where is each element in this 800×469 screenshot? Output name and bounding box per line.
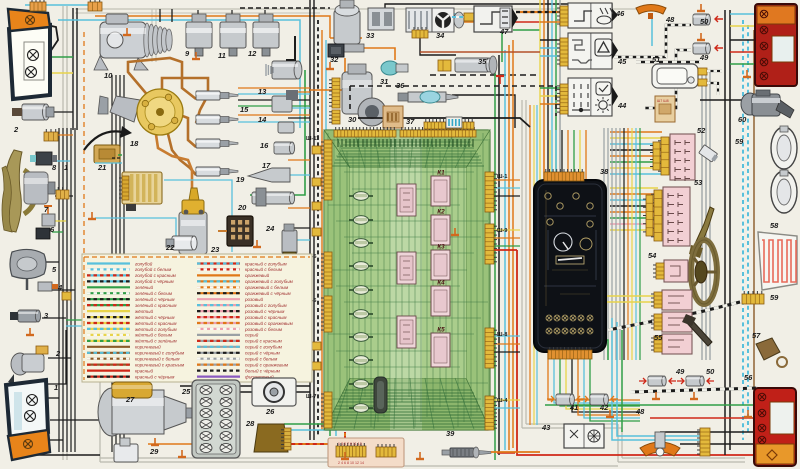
svg-text:зелёный: зелёный bbox=[134, 284, 154, 290]
svg-text:К1: К1 bbox=[437, 170, 445, 177]
svg-text:23: 23 bbox=[210, 245, 220, 254]
svg-text:розовый с голубым: розовый с голубым bbox=[244, 302, 287, 308]
svg-text:52: 52 bbox=[697, 126, 706, 135]
svg-text:53: 53 bbox=[694, 178, 703, 187]
svg-text:60: 60 bbox=[738, 115, 747, 124]
svg-text:12: 12 bbox=[248, 49, 257, 58]
svg-text:47: 47 bbox=[499, 27, 509, 36]
svg-text:44: 44 bbox=[617, 101, 627, 110]
svg-text:48: 48 bbox=[665, 15, 675, 24]
svg-text:жёлтый с зелёным: жёлтый с зелёным bbox=[134, 338, 177, 344]
svg-text:серый с чёрным: серый с чёрным bbox=[245, 350, 281, 356]
svg-text:45: 45 bbox=[617, 57, 627, 66]
svg-text:голубой с красным: голубой с красным bbox=[135, 272, 177, 278]
svg-text:54: 54 bbox=[648, 251, 657, 260]
svg-text:59: 59 bbox=[770, 293, 779, 302]
svg-text:16: 16 bbox=[260, 141, 269, 150]
svg-text:27: 27 bbox=[125, 395, 135, 404]
svg-text:22: 22 bbox=[165, 243, 175, 252]
svg-text:Ш-7: Ш-7 bbox=[306, 394, 316, 400]
svg-text:розовый с чёрным: розовый с чёрным bbox=[244, 308, 285, 314]
svg-text:46: 46 bbox=[615, 9, 625, 18]
svg-text:41: 41 bbox=[569, 403, 578, 412]
svg-text:28: 28 bbox=[245, 419, 255, 428]
svg-text:коричневый с голубым: коричневый с голубым bbox=[135, 350, 185, 356]
svg-text:зелёный с красным: зелёный с красным bbox=[134, 302, 177, 308]
svg-text:50: 50 bbox=[700, 17, 709, 26]
svg-text:39: 39 bbox=[446, 429, 455, 438]
svg-text:красный с белым: красный с белым bbox=[245, 266, 283, 272]
svg-text:59: 59 bbox=[735, 137, 744, 146]
svg-text:Ш-4: Ш-4 bbox=[497, 398, 508, 404]
svg-text:2: 2 bbox=[13, 125, 19, 134]
svg-text:50: 50 bbox=[706, 367, 715, 376]
svg-text:15: 15 bbox=[240, 105, 249, 114]
svg-text:оранжевый с белым: оранжевый с белым bbox=[245, 284, 289, 290]
svg-text:21: 21 bbox=[97, 163, 106, 172]
svg-text:коричневый: коричневый bbox=[135, 344, 161, 350]
svg-text:19: 19 bbox=[236, 175, 245, 184]
svg-text:оранжевый с чёрным: оранжевый с чёрным bbox=[245, 290, 291, 296]
svg-text:51: 51 bbox=[652, 55, 660, 64]
svg-text:жёлтый с красным: жёлтый с красным bbox=[134, 320, 177, 326]
svg-text:зелёный с чёрным: зелёный с чёрным bbox=[134, 296, 175, 302]
svg-text:жёлтый с белым: жёлтый с белым bbox=[134, 332, 173, 338]
svg-text:10: 10 bbox=[104, 71, 113, 80]
svg-text:33: 33 bbox=[366, 31, 375, 40]
svg-text:26: 26 bbox=[265, 407, 275, 416]
svg-text:Ш-11: Ш-11 bbox=[306, 136, 319, 142]
svg-text:35: 35 bbox=[478, 57, 487, 66]
svg-text:49: 49 bbox=[675, 367, 685, 376]
svg-text:серый с белым: серый с белым bbox=[245, 356, 278, 362]
svg-text:34: 34 bbox=[436, 31, 445, 40]
svg-text:Ш-9: Ш-9 bbox=[497, 228, 507, 234]
svg-text:Ш-8: Ш-8 bbox=[497, 332, 507, 338]
svg-text:оранжевый с голубым: оранжевый с голубым bbox=[245, 278, 294, 284]
svg-text:К2: К2 bbox=[437, 209, 445, 216]
svg-text:красный: красный bbox=[135, 367, 153, 373]
svg-text:49: 49 bbox=[699, 53, 709, 62]
svg-text:красный с чёрным: красный с чёрным bbox=[135, 373, 175, 379]
svg-text:36: 36 bbox=[396, 81, 405, 90]
svg-text:29: 29 bbox=[149, 447, 159, 456]
svg-text:57: 57 bbox=[752, 331, 761, 340]
svg-text:30: 30 bbox=[348, 115, 357, 124]
svg-text:белый с чёрным: белый с чёрным bbox=[245, 367, 281, 373]
svg-text:1 3 5 7 9 11 13: 1 3 5 7 9 11 13 bbox=[338, 442, 362, 446]
svg-text:37: 37 bbox=[406, 117, 415, 126]
svg-text:48: 48 bbox=[635, 407, 645, 416]
svg-text:серый с голубым: серый с голубым bbox=[245, 344, 283, 350]
svg-text:зелёный с белым: зелёный с белым bbox=[134, 290, 173, 296]
svg-text:18: 18 bbox=[130, 139, 139, 148]
svg-text:2: 2 bbox=[55, 349, 61, 358]
svg-text:1: 1 bbox=[64, 163, 68, 172]
svg-text:коричневый с красным: коричневый с красным bbox=[135, 361, 185, 367]
svg-text:1: 1 bbox=[54, 383, 58, 392]
svg-text:коричневый с белым: коричневый с белым bbox=[135, 356, 180, 362]
svg-text:серый: серый bbox=[245, 332, 259, 338]
svg-text:43: 43 bbox=[541, 423, 551, 432]
svg-text:К3: К3 bbox=[437, 244, 445, 251]
svg-text:Ш-1: Ш-1 bbox=[497, 174, 507, 180]
svg-text:38: 38 bbox=[600, 167, 609, 176]
svg-text:жёлтый с чёрным: жёлтый с чёрным bbox=[134, 314, 175, 320]
svg-text:розовый: розовый bbox=[244, 296, 263, 302]
svg-text:розовый с оранжевым: розовый с оранжевым bbox=[244, 320, 294, 326]
svg-text:4: 4 bbox=[57, 283, 63, 292]
svg-text:11: 11 bbox=[218, 51, 226, 60]
svg-text:жёлтый: жёлтый bbox=[134, 308, 154, 314]
svg-text:13: 13 bbox=[258, 87, 267, 96]
svg-text:розовый с белым: розовый с белым bbox=[244, 326, 283, 332]
svg-text:голубой с белым: голубой с белым bbox=[135, 266, 172, 272]
svg-text:голубой с чёрным: голубой с чёрным bbox=[135, 278, 175, 284]
svg-text:58: 58 bbox=[770, 221, 779, 230]
svg-text:серый с оранжевым: серый с оранжевым bbox=[245, 361, 289, 367]
svg-text:Ш7 Ш8: Ш7 Ш8 bbox=[657, 99, 669, 103]
svg-text:К4: К4 bbox=[437, 280, 445, 287]
svg-text:2 4 6 8 10 12 14: 2 4 6 8 10 12 14 bbox=[338, 461, 364, 465]
svg-text:31: 31 bbox=[380, 77, 388, 86]
svg-text:серый с красным: серый с красным bbox=[245, 338, 283, 344]
svg-text:14: 14 bbox=[258, 115, 267, 124]
svg-text:20: 20 bbox=[237, 203, 247, 212]
svg-text:25: 25 bbox=[181, 387, 191, 396]
svg-text:красный с голубым: красный с голубым bbox=[245, 260, 287, 266]
svg-text:голубой: голубой bbox=[135, 260, 153, 266]
svg-text:К5: К5 bbox=[437, 327, 445, 334]
svg-text:55: 55 bbox=[654, 333, 663, 342]
svg-text:42: 42 bbox=[599, 403, 609, 412]
svg-text:17: 17 bbox=[262, 161, 271, 170]
svg-text:32: 32 bbox=[330, 55, 339, 64]
svg-text:24: 24 bbox=[265, 224, 275, 233]
svg-text:56: 56 bbox=[744, 373, 753, 382]
svg-text:оранжевый: оранжевый bbox=[245, 272, 270, 278]
svg-text:розовый с красным: розовый с красным bbox=[244, 314, 287, 320]
svg-text:жёлтый с голубым: жёлтый с голубым bbox=[134, 326, 177, 332]
